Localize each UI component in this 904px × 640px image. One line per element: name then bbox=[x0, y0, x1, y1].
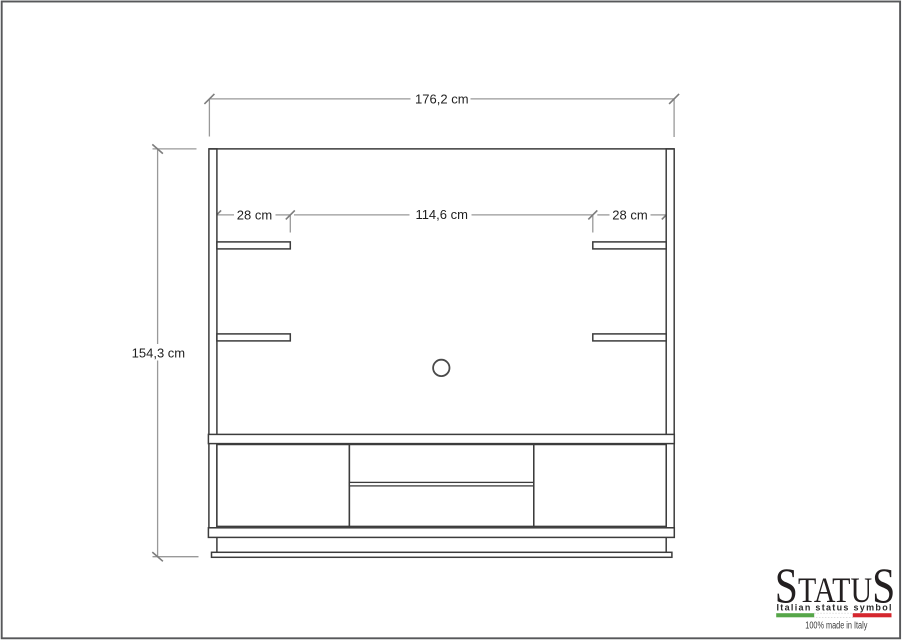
svg-text:100% made in Italy: 100% made in Italy bbox=[805, 620, 867, 631]
svg-text:114,6 cm: 114,6 cm bbox=[415, 207, 468, 222]
svg-text:28 cm: 28 cm bbox=[612, 208, 647, 223]
svg-text:154,3 cm: 154,3 cm bbox=[132, 345, 185, 360]
svg-text:176,2 cm: 176,2 cm bbox=[415, 92, 468, 107]
svg-text:28 cm: 28 cm bbox=[237, 208, 272, 223]
